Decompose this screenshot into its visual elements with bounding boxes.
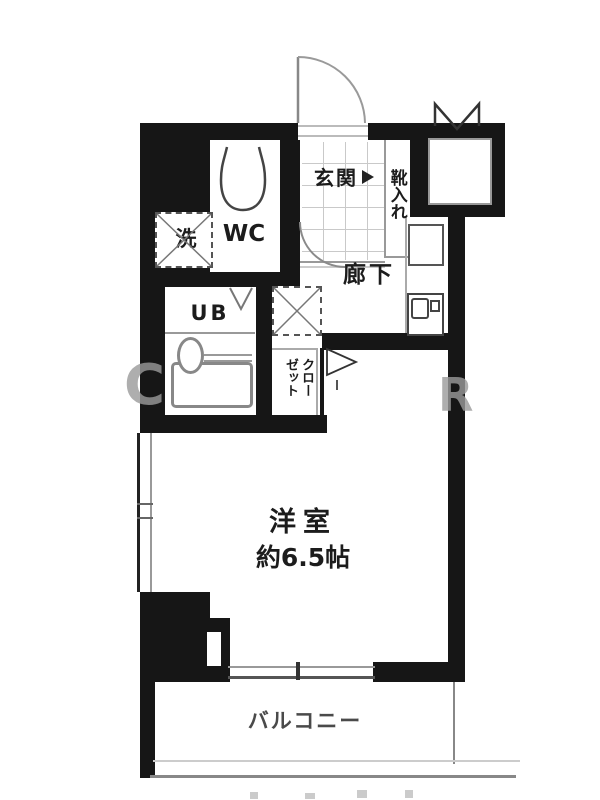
- entrance-threshold-line: [298, 125, 368, 127]
- balcony-bottom-line: [153, 760, 520, 762]
- kitchen-sink-bowl: [411, 298, 429, 319]
- closet-top-edge: [272, 348, 318, 350]
- kitchen-burner: [430, 300, 440, 312]
- entrance-tile-grid: [302, 142, 384, 260]
- room-left-window-inner: [150, 433, 152, 592]
- closet-right-line: [316, 348, 318, 415]
- toilet-icon: [221, 147, 265, 210]
- entrance-door-arc: [298, 57, 365, 123]
- wall-wc-hall-divider: [280, 140, 300, 287]
- shoe-storage-divider: [384, 140, 386, 258]
- utility-box: [272, 286, 322, 336]
- main-room-label: 洋室: [253, 508, 353, 538]
- bath-faucet-line: [204, 354, 252, 356]
- closet-label: クローゼット: [276, 352, 314, 402]
- wall-balcony-left: [140, 682, 155, 778]
- window-tick: [137, 503, 153, 505]
- laundry-label: 洗: [172, 228, 200, 251]
- wall-room-bottom-right: [373, 662, 465, 682]
- main-room-size: 約6.5帖: [238, 544, 368, 572]
- entrance-threshold-line: [298, 135, 368, 137]
- cropped-text-remnant: [405, 790, 413, 798]
- meter-box: [428, 138, 492, 205]
- balcony-right-edge: [453, 682, 455, 764]
- wall-closet-right-edge: [320, 348, 324, 415]
- window-tick: [137, 517, 153, 519]
- balcony-window-tick: [296, 662, 300, 680]
- watermark-letter-left: C: [124, 358, 165, 414]
- hallway-label: 廊下: [338, 263, 400, 288]
- balcony-window-line: [228, 666, 375, 668]
- wall-room-top: [140, 415, 327, 433]
- wc-label: WC: [218, 222, 270, 247]
- floorplan: 玄関 靴入れ WC 洗 廊下 UB クローゼット 洋室 約6.5帖 バルコニー …: [0, 0, 600, 800]
- cropped-text-remnant: [250, 792, 258, 799]
- shoe-storage-label: 靴入れ: [387, 147, 406, 242]
- bath-basin-icon: [177, 337, 204, 374]
- wall-bath-closet-divider: [256, 283, 272, 418]
- balcony-label: バルコニー: [230, 710, 380, 733]
- bath-counter-line: [165, 332, 255, 334]
- wall-right: [448, 217, 465, 682]
- room-door-triangle: [327, 349, 356, 375]
- balcony-window-line: [228, 676, 375, 679]
- cropped-text-remnant: [357, 790, 367, 798]
- cropped-text-remnant: [305, 793, 315, 799]
- entrance-label: 玄関: [306, 167, 366, 189]
- watermark-letter-right: R: [438, 372, 473, 418]
- wall-top-right: [368, 123, 415, 140]
- refrigerator-space: [408, 224, 444, 266]
- unit-bath-label: UB: [186, 302, 234, 325]
- room-left-window-outer: [137, 433, 140, 592]
- pillar-window-slot: [207, 632, 221, 666]
- balcony-outer-line: [150, 775, 516, 778]
